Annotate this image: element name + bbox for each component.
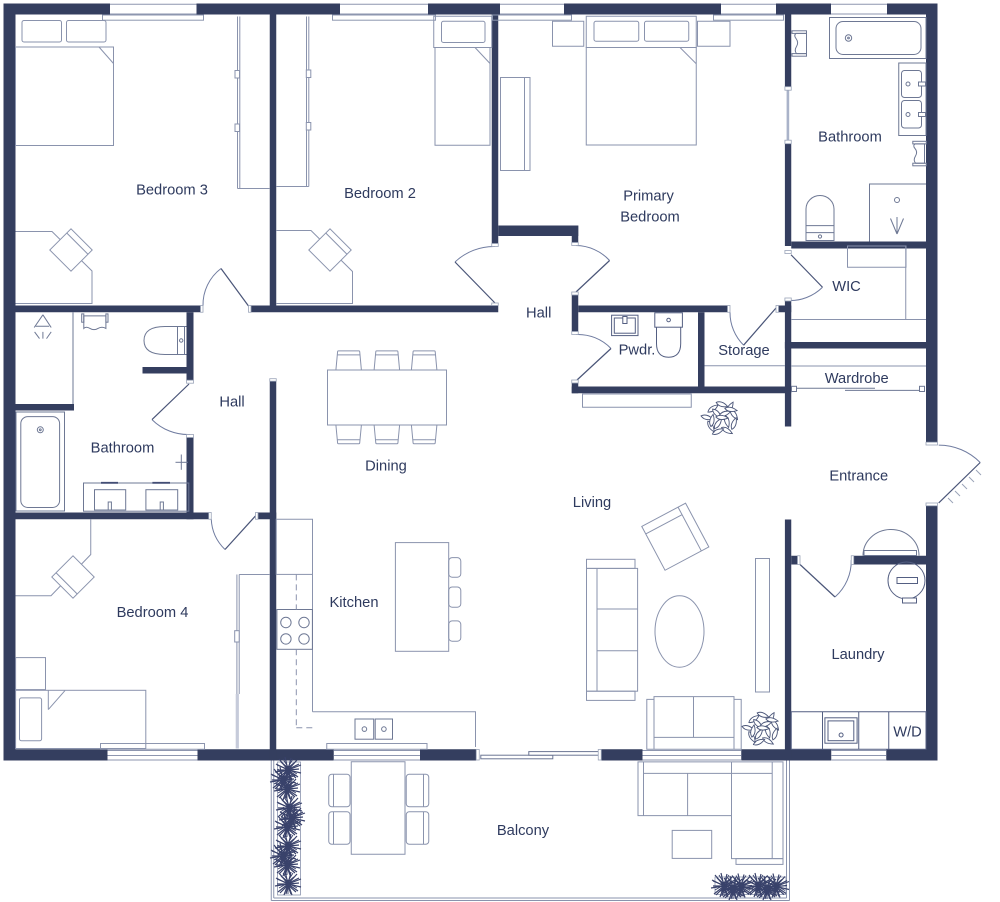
svg-text:Storage: Storage xyxy=(718,343,769,359)
svg-text:Laundry: Laundry xyxy=(831,647,885,663)
svg-text:Bedroom 4: Bedroom 4 xyxy=(117,605,189,621)
svg-text:Bedroom 3: Bedroom 3 xyxy=(136,183,208,199)
svg-text:Entrance: Entrance xyxy=(829,468,888,484)
svg-text:Dining: Dining xyxy=(365,458,407,474)
svg-text:Bathroom: Bathroom xyxy=(818,130,882,146)
svg-text:Hall: Hall xyxy=(526,305,551,321)
svg-text:Pwdr.: Pwdr. xyxy=(619,342,656,358)
svg-text:Living: Living xyxy=(573,495,611,511)
svg-text:Bedroom 2: Bedroom 2 xyxy=(344,186,416,202)
svg-text:W/D: W/D xyxy=(893,724,922,740)
svg-text:Kitchen: Kitchen xyxy=(330,595,379,611)
svg-text:Balcony: Balcony xyxy=(497,823,550,839)
svg-text:Primary: Primary xyxy=(623,189,674,205)
svg-text:Bedroom: Bedroom xyxy=(620,210,680,226)
svg-text:Hall: Hall xyxy=(219,394,244,410)
svg-text:Bathroom: Bathroom xyxy=(91,440,155,456)
svg-text:Wardrobe: Wardrobe xyxy=(825,371,889,387)
svg-text:WIC: WIC xyxy=(832,279,861,295)
